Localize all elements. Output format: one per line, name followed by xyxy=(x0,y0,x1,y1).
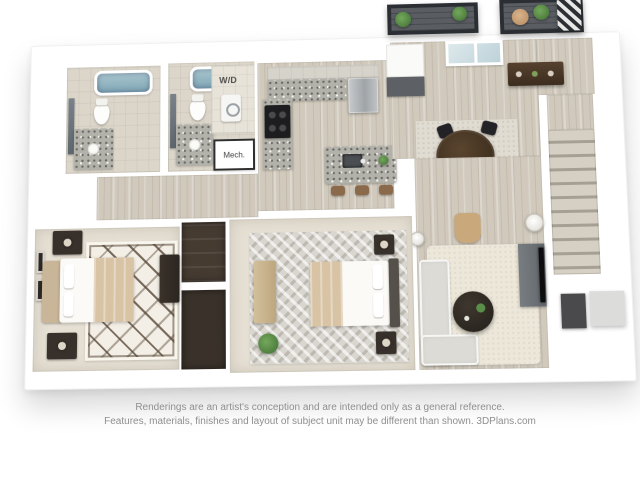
kitchen-counter xyxy=(267,78,346,101)
nightstand-icon xyxy=(47,333,77,360)
nightstand-icon xyxy=(374,234,395,254)
floor-plan-page: W/D Mech. xyxy=(0,0,640,480)
dresser-icon xyxy=(254,261,277,324)
apartment-outline: W/D Mech. xyxy=(24,31,637,390)
balcony-railing xyxy=(557,0,582,31)
vanity-icon xyxy=(74,128,114,170)
mechanical-closet-door: Mech. xyxy=(213,139,255,171)
vanity-icon xyxy=(176,124,214,166)
entry-stoop xyxy=(589,291,626,326)
sideboard-icon xyxy=(507,62,564,87)
hallway-floor xyxy=(96,174,258,221)
bar-stool-icon xyxy=(331,186,345,196)
pillow-icon xyxy=(373,293,384,318)
built-in-shelf xyxy=(386,44,424,78)
nightstand-icon xyxy=(376,331,397,354)
floor-plan-rendering: W/D Mech. xyxy=(24,31,637,390)
nightstand-icon xyxy=(52,230,82,254)
pillow-icon xyxy=(372,265,383,289)
bar-stool-icon xyxy=(355,185,369,195)
stove-icon xyxy=(265,105,291,139)
closet xyxy=(181,290,226,370)
bed-blanket xyxy=(310,261,343,326)
desk-icon xyxy=(387,76,425,96)
closet-walk-in xyxy=(182,222,226,283)
pillow-icon xyxy=(63,292,73,316)
disclaimer-line-1: Renderings are an artist's conception an… xyxy=(0,401,640,415)
balcony-glass-door xyxy=(445,40,503,66)
bed-blanket xyxy=(93,257,134,322)
refrigerator-icon xyxy=(348,78,378,114)
laundry-label: W/D xyxy=(219,75,237,85)
disclaimer-line-2: Features, materials, finishes and layout… xyxy=(0,415,640,429)
disclaimer-text: Renderings are an artist's conception an… xyxy=(0,401,640,429)
washer-dryer-icon xyxy=(221,94,241,122)
entry-door xyxy=(561,293,587,328)
sink-icon xyxy=(342,154,362,168)
mechanical-label: Mech. xyxy=(223,150,245,159)
accent-chair-icon xyxy=(454,213,481,244)
stair-landing xyxy=(547,94,595,130)
sofa-icon xyxy=(421,334,479,366)
bed-headboard xyxy=(388,258,400,327)
bathtub-icon xyxy=(94,70,153,96)
entry-stairs xyxy=(548,129,601,275)
dresser-icon xyxy=(159,254,179,302)
pillow-icon xyxy=(64,264,74,288)
bar-stool-icon xyxy=(379,185,393,195)
